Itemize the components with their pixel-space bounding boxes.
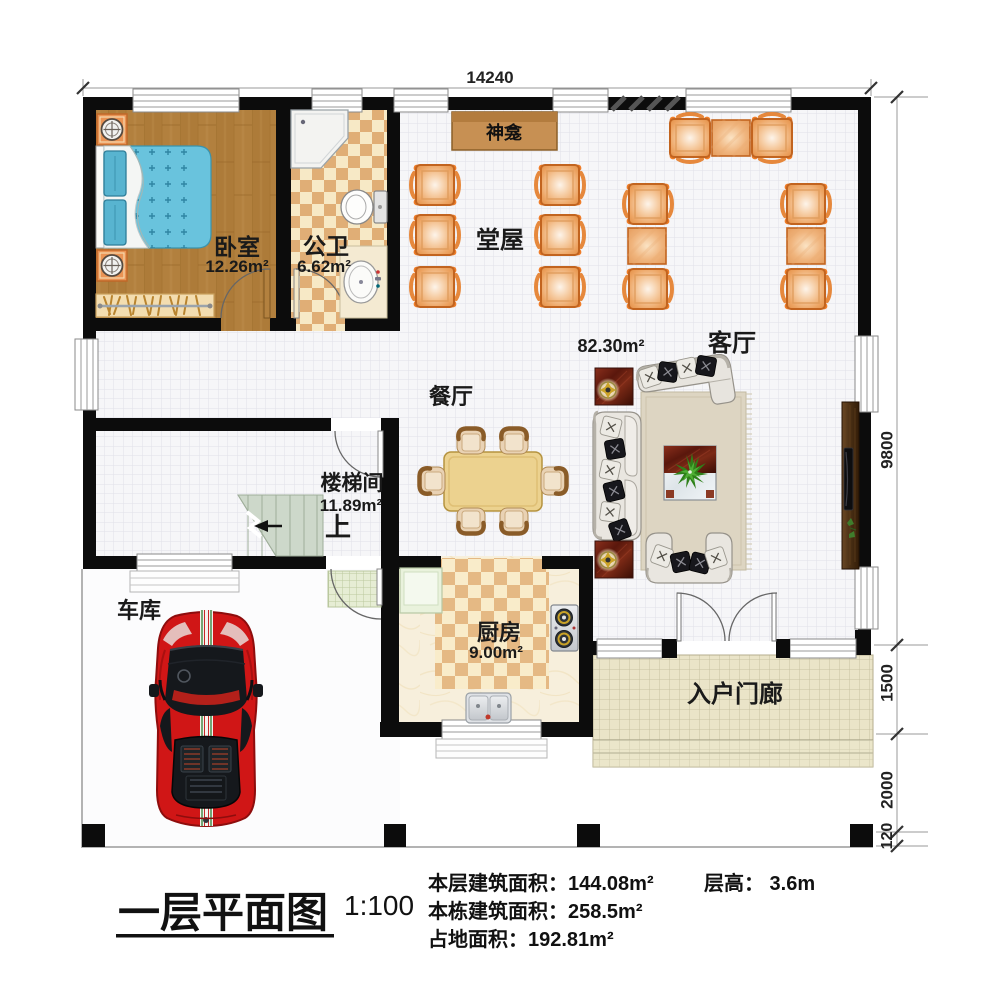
svg-text:入户门廊: 入户门廊 (687, 680, 783, 708)
svg-text:14240: 14240 (466, 68, 513, 87)
svg-text:层高： 3.6m: 层高： 3.6m (704, 871, 815, 895)
svg-text:楼梯间: 楼梯间 (321, 471, 384, 495)
svg-text:12.26m²: 12.26m² (205, 257, 269, 276)
svg-text:客厅: 客厅 (708, 329, 756, 357)
svg-text:一层平面图: 一层平面图 (118, 889, 328, 936)
svg-text:餐厅: 餐厅 (429, 384, 473, 409)
svg-text:9.00m²: 9.00m² (469, 643, 523, 662)
svg-text:2000: 2000 (877, 771, 896, 809)
svg-text:120: 120 (879, 823, 896, 850)
svg-text:1:100: 1:100 (344, 890, 414, 921)
svg-text:神龛: 神龛 (486, 122, 523, 143)
svg-text:公卫: 公卫 (303, 233, 349, 259)
svg-text:占地面积：192.81m²: 占地面积：192.81m² (428, 928, 614, 951)
svg-text:9800: 9800 (877, 431, 896, 469)
svg-text:厨房: 厨房 (477, 620, 521, 645)
svg-text:本栋建筑面积：258.5m²: 本栋建筑面积：258.5m² (428, 899, 643, 923)
svg-text:6.62m²: 6.62m² (297, 257, 351, 276)
svg-text:堂屋: 堂屋 (476, 227, 524, 254)
svg-text:上: 上 (325, 512, 351, 542)
svg-text:1500: 1500 (877, 664, 896, 702)
svg-text:82.30m²: 82.30m² (577, 336, 644, 356)
svg-text:本层建筑面积：144.08m²: 本层建筑面积：144.08m² (428, 871, 654, 895)
svg-text:车库: 车库 (117, 598, 161, 623)
